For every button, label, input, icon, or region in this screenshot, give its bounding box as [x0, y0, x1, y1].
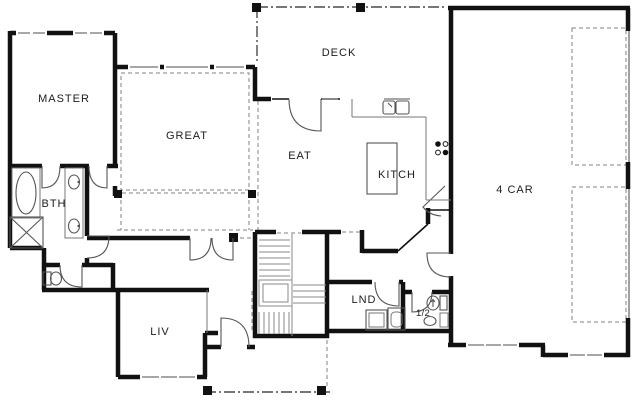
floor-plan-drawing: MASTER BTH GREAT DECK EAT KITCH 4 CAR LI…: [0, 0, 640, 403]
cooktop-burner-icon: [435, 141, 441, 147]
deck-post-icon: [356, 3, 365, 12]
laundry-fixtures: [366, 308, 405, 330]
room-label-deck: DECK: [322, 47, 357, 59]
porch-outline: [203, 291, 331, 395]
floor-plan-canvas: MASTER BTH GREAT DECK EAT KITCH 4 CAR LI…: [0, 0, 640, 403]
vanity-counter: [65, 168, 83, 238]
garage-door-overhead-outlines: [572, 28, 629, 322]
walls: [10, 8, 630, 377]
master-bath-door: [42, 166, 60, 188]
room-label-great: GREAT: [166, 130, 208, 142]
garage-entry-door: [427, 253, 451, 277]
cooktop-burner-icon: [436, 150, 441, 155]
front-door: [221, 318, 249, 347]
entry-double-door-left: [190, 238, 211, 260]
vanity-cabinet: [440, 313, 448, 327]
porch-post-icon: [317, 386, 326, 395]
room-label-master: MASTER: [38, 93, 90, 105]
toilet-icon: [51, 272, 62, 285]
doors: [42, 99, 451, 347]
room-label-bath: BTH: [42, 198, 67, 210]
room-label-half-bath: 1/2: [416, 308, 430, 319]
room-label-laundry: LND: [351, 294, 376, 306]
deck-post-icon: [252, 3, 261, 12]
deck-door: [289, 99, 321, 131]
laundry-door: [375, 282, 399, 306]
windows: [16, 33, 604, 377]
kitchen-fixtures: [352, 99, 451, 200]
toilet-room-door: [60, 265, 82, 287]
cooktop-burner-icon: [443, 142, 448, 147]
master-hall-door: [89, 166, 107, 188]
bathtub-icon: [16, 172, 36, 214]
room-label-kitchen: KITCH: [378, 169, 416, 181]
kitchen-sink-icon: [396, 101, 409, 114]
room-label-eat: EAT: [288, 150, 312, 162]
toilet-tank: [440, 296, 447, 310]
lanai-post-icon: [114, 190, 122, 198]
master-bath-fixtures: [10, 168, 83, 285]
porch-post-icon: [203, 386, 212, 395]
kitchen-sink-icon: [383, 101, 395, 114]
ceiling-break-lines: [115, 73, 361, 238]
stairs: [259, 234, 326, 336]
lanai-post-icon: [248, 190, 256, 198]
cooktop-burner-icon: [443, 150, 449, 156]
room-label-living: LIV: [150, 326, 170, 338]
room-label-garage: 4 CAR: [496, 184, 533, 196]
